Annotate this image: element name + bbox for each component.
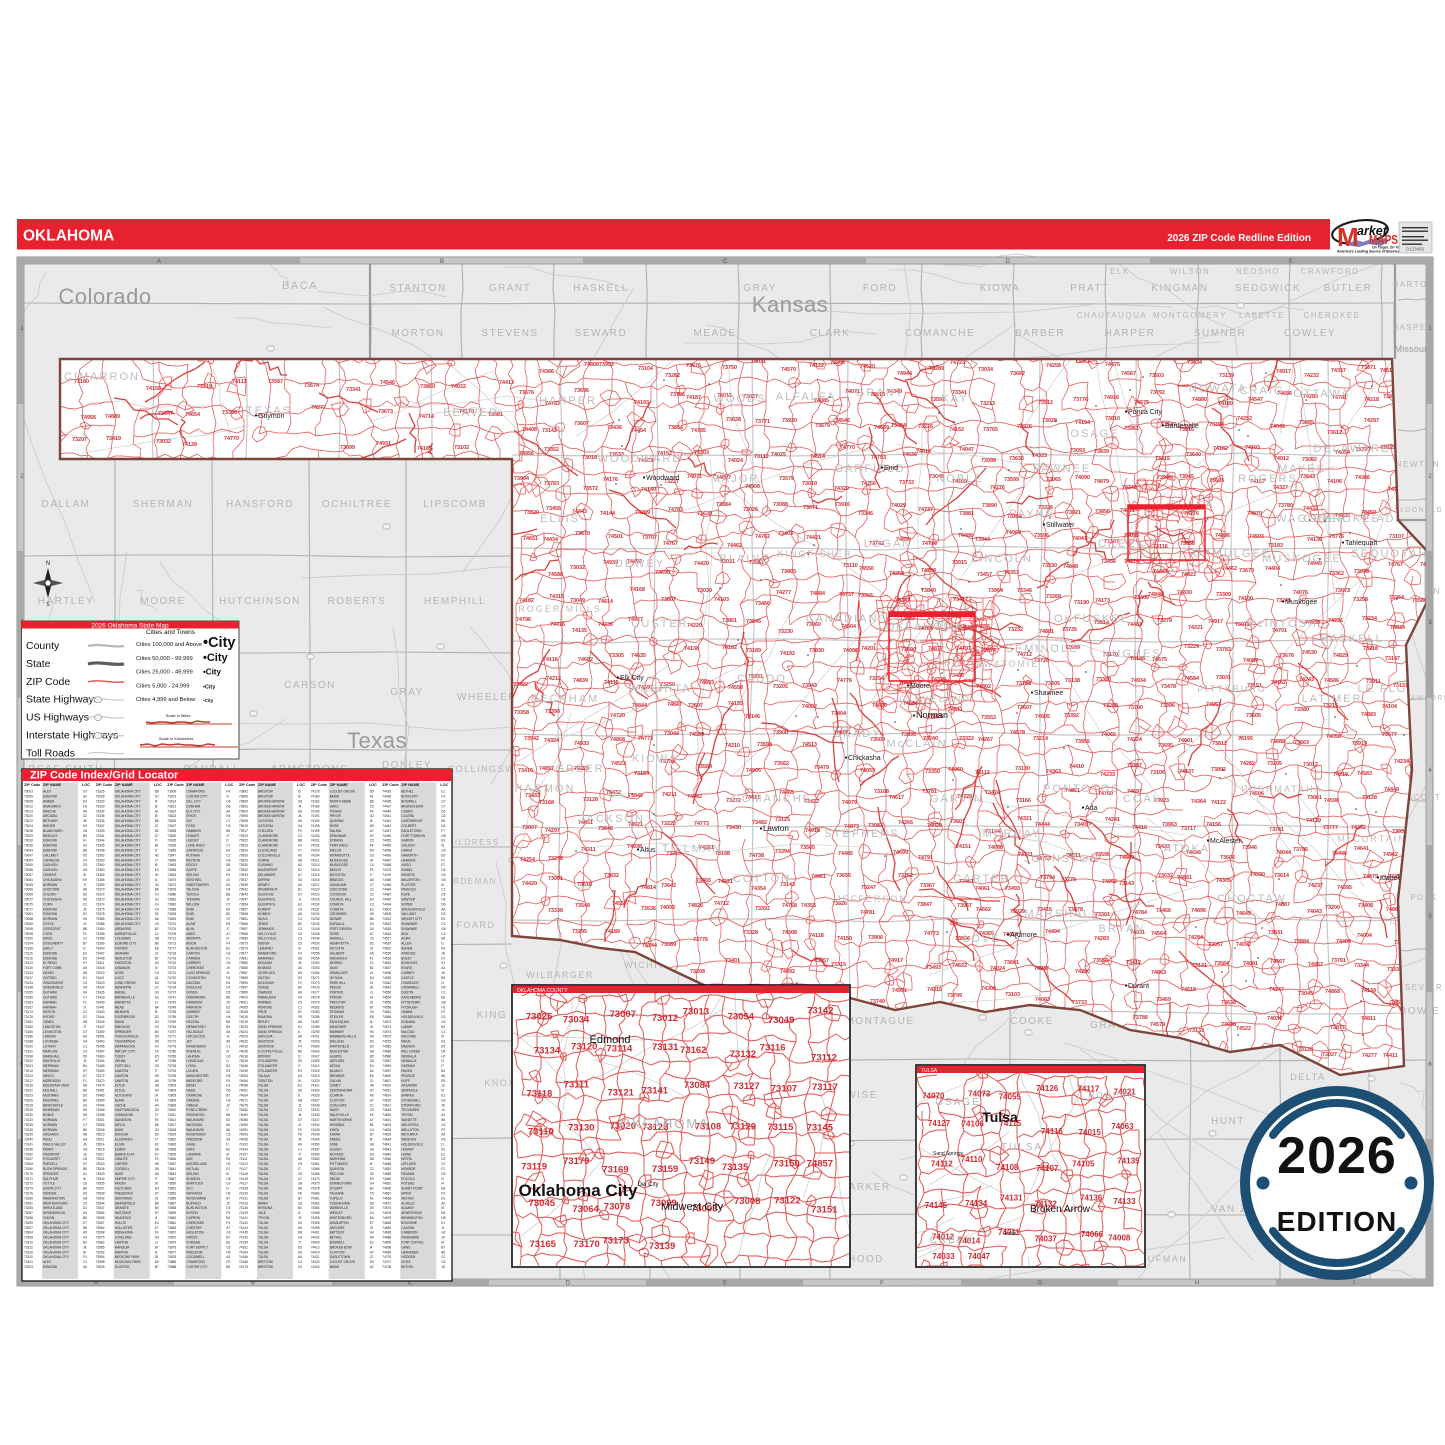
svg-text:73278: 73278 <box>1061 877 1076 883</box>
svg-text:73061: 73061 <box>1307 795 1322 801</box>
svg-text:•City: •City <box>203 635 235 651</box>
svg-text:74410: 74410 <box>1132 825 1147 831</box>
svg-text:73252: 73252 <box>898 873 913 879</box>
svg-text:73530: 73530 <box>1042 563 1057 569</box>
svg-text:HUNT: HUNT <box>1211 1116 1245 1127</box>
svg-text:73877: 73877 <box>1330 1025 1345 1031</box>
svg-text:74162: 74162 <box>1271 680 1286 686</box>
svg-text:LATIMER: LATIMER <box>1302 693 1363 705</box>
svg-text:74598: 74598 <box>1324 798 1339 804</box>
svg-text:74055: 74055 <box>860 768 875 774</box>
svg-text:73670: 73670 <box>575 531 590 537</box>
svg-text:74140: 74140 <box>641 487 656 493</box>
svg-text:73750: 73750 <box>722 365 737 371</box>
svg-text:74962: 74962 <box>1383 852 1398 858</box>
svg-text:74002: 74002 <box>802 704 817 710</box>
svg-text:74421: 74421 <box>806 535 821 541</box>
svg-text:73341: 73341 <box>346 387 361 393</box>
svg-text:WILBARGER: WILBARGER <box>526 970 594 980</box>
svg-text:73309: 73309 <box>1216 592 1231 598</box>
svg-text:CRAWFORD: CRAWFORD <box>1301 267 1360 276</box>
svg-text:74501: 74501 <box>608 534 623 540</box>
svg-text:LOC: LOC <box>154 783 162 787</box>
svg-text:74654: 74654 <box>185 412 200 418</box>
svg-text:73642: 73642 <box>661 883 676 889</box>
svg-text:SUMNER: SUMNER <box>1194 328 1246 339</box>
svg-text:73638: 73638 <box>726 417 741 423</box>
svg-text:73065: 73065 <box>1046 477 1061 483</box>
svg-text:74018: 74018 <box>805 828 820 834</box>
svg-text:74834: 74834 <box>1390 625 1405 631</box>
svg-text:73588: 73588 <box>1412 598 1427 604</box>
svg-text:STEPHENS: STEPHENS <box>824 828 899 840</box>
svg-text:73358: 73358 <box>514 710 529 716</box>
svg-text:73045: 73045 <box>1298 991 1313 997</box>
svg-text:74136: 74136 <box>1307 537 1322 543</box>
svg-text:73663: 73663 <box>1294 740 1309 746</box>
svg-text:74004: 74004 <box>1357 933 1372 939</box>
svg-text:74041: 74041 <box>1072 536 1087 542</box>
svg-text:73305: 73305 <box>609 653 624 659</box>
svg-text:73218: 73218 <box>197 384 212 390</box>
svg-text:74276: 74276 <box>1184 511 1199 517</box>
svg-text:74236: 74236 <box>1328 618 1343 624</box>
svg-text:74355: 74355 <box>801 903 816 909</box>
svg-text:74884: 74884 <box>810 591 825 597</box>
svg-text:73553: 73553 <box>981 715 996 721</box>
svg-text:73143: 73143 <box>1119 881 1134 887</box>
svg-text:73230: 73230 <box>778 629 793 635</box>
svg-text:73034: 73034 <box>563 1015 590 1026</box>
svg-text:74662: 74662 <box>976 907 991 913</box>
svg-text:733257332873329733307333473335: 7332573328733297333073334733357333673337… <box>96 790 105 1269</box>
svg-text:73116: 73116 <box>1153 544 1168 550</box>
svg-text:73131: 73131 <box>652 1042 679 1053</box>
svg-text:Missouri: Missouri <box>1394 344 1429 354</box>
svg-text:74221: 74221 <box>718 879 733 885</box>
svg-text:Chickasha: Chickasha <box>848 755 881 762</box>
svg-text:74682: 74682 <box>578 657 593 663</box>
svg-text:74354: 74354 <box>751 886 766 892</box>
svg-text:HANSFORD: HANSFORD <box>226 499 294 510</box>
svg-text:74100: 74100 <box>1238 596 1253 602</box>
svg-text:73955: 73955 <box>1075 739 1090 745</box>
svg-text:74127: 74127 <box>928 1119 951 1128</box>
svg-text:74233: 74233 <box>1100 772 1115 778</box>
svg-text:Altus: Altus <box>640 847 656 854</box>
svg-text:73134: 73134 <box>534 1045 561 1056</box>
svg-text:74877: 74877 <box>928 646 943 652</box>
svg-text:73118: 73118 <box>526 1088 552 1099</box>
svg-text:74595: 74595 <box>1337 885 1352 891</box>
svg-text:74025: 74025 <box>771 452 786 458</box>
svg-text:74290: 74290 <box>1075 969 1090 975</box>
svg-text:MUSKOGEE: MUSKOGEE <box>1262 553 1342 565</box>
svg-text:D123456: D123456 <box>1406 247 1425 252</box>
svg-text:74063: 74063 <box>1111 1122 1134 1131</box>
svg-text:73169: 73169 <box>602 1165 628 1176</box>
svg-text:74252: 74252 <box>1237 416 1252 422</box>
svg-text:NEWTON: NEWTON <box>1396 460 1440 469</box>
svg-text:73810: 73810 <box>1105 416 1120 422</box>
svg-text:74956: 74956 <box>519 451 534 457</box>
svg-text:73430: 73430 <box>726 825 741 831</box>
svg-text:74008: 74008 <box>1108 1233 1131 1242</box>
svg-text:GRANT: GRANT <box>856 387 905 399</box>
svg-text:ROGER MILLS: ROGER MILLS <box>518 604 602 614</box>
svg-text:74277: 74277 <box>776 590 791 596</box>
svg-text:73013: 73013 <box>683 1006 709 1017</box>
svg-text:74122: 74122 <box>809 363 824 369</box>
svg-text:74956: 74956 <box>81 415 96 421</box>
svg-text:74641: 74641 <box>1354 846 1369 852</box>
svg-text:74133: 74133 <box>1113 1197 1136 1206</box>
svg-text:74049: 74049 <box>1270 424 1285 430</box>
svg-text:OKFUSKEE: OKFUSKEE <box>1054 613 1130 625</box>
svg-text:74434: 74434 <box>543 537 558 543</box>
svg-text:74857: 74857 <box>807 1159 833 1170</box>
svg-text:73621: 73621 <box>1066 510 1081 516</box>
svg-text:74115: 74115 <box>604 680 619 686</box>
svg-text:73556: 73556 <box>1093 958 1108 964</box>
svg-text:JACKSON: JACKSON <box>579 813 645 825</box>
svg-text:73916: 73916 <box>835 502 850 508</box>
svg-text:73854: 73854 <box>668 425 683 431</box>
svg-text:74224: 74224 <box>1127 737 1142 743</box>
svg-text:74150: 74150 <box>837 936 852 942</box>
svg-text:73412: 73412 <box>1126 960 1141 966</box>
svg-text:ZIP NAME: ZIP NAME <box>258 783 277 787</box>
svg-text:HARMON: HARMON <box>515 783 576 795</box>
svg-text:ZIP Code: ZIP Code <box>24 783 40 787</box>
svg-text:73466: 73466 <box>755 601 770 607</box>
svg-text:73032: 73032 <box>1158 873 1173 879</box>
svg-text:74479: 74479 <box>1363 874 1378 880</box>
svg-text:74061: 74061 <box>975 886 990 892</box>
svg-text:74103: 74103 <box>714 597 729 603</box>
svg-text:LABETTE: LABETTE <box>1239 311 1285 320</box>
svg-text:HEMPHILL: HEMPHILL <box>424 596 486 607</box>
svg-text:73001: 73001 <box>548 876 563 882</box>
svg-text:74961: 74961 <box>811 874 826 880</box>
svg-text:74868: 74868 <box>1325 989 1340 995</box>
svg-text:74931: 74931 <box>376 441 391 447</box>
svg-text:74060: 74060 <box>948 767 963 773</box>
svg-text:74324: 74324 <box>544 738 559 744</box>
svg-text:74767: 74767 <box>663 541 678 547</box>
svg-text:73142: 73142 <box>542 428 557 434</box>
svg-text:OKLAHOMA: OKLAHOMA <box>23 228 114 245</box>
svg-text:74116: 74116 <box>1041 1127 1063 1136</box>
svg-text:GARVIN: GARVIN <box>930 793 984 805</box>
svg-text:73130: 73130 <box>568 1122 594 1133</box>
svg-text:BEAVER: BEAVER <box>443 407 499 419</box>
svg-text:73945: 73945 <box>1179 474 1194 480</box>
svg-text:LOC: LOC <box>297 783 305 787</box>
svg-text:73807: 73807 <box>661 597 676 603</box>
svg-text:73790: 73790 <box>1128 705 1143 711</box>
svg-text:73607: 73607 <box>1017 705 1032 711</box>
svg-text:73922: 73922 <box>513 682 528 688</box>
svg-text:74247: 74247 <box>1269 987 1284 993</box>
svg-text:73542: 73542 <box>524 736 539 742</box>
svg-text:Kansas: Kansas <box>752 292 828 317</box>
svg-text:73598: 73598 <box>757 742 772 748</box>
svg-text:73073: 73073 <box>1335 588 1350 594</box>
svg-text:Cities 5,000 - 24,999: Cities 5,000 - 24,999 <box>136 683 190 689</box>
svg-text:74201: 74201 <box>861 646 876 652</box>
svg-text:73110: 73110 <box>843 563 858 569</box>
svg-text:73478: 73478 <box>1161 684 1176 690</box>
svg-text:73132: 73132 <box>730 1049 756 1060</box>
svg-text:74781: 74781 <box>860 910 875 916</box>
svg-text:BARBER: BARBER <box>1015 328 1065 339</box>
svg-text:73133: 73133 <box>1189 1028 1204 1034</box>
svg-text:74189: 74189 <box>605 929 620 935</box>
svg-text:73019: 73019 <box>802 481 817 487</box>
svg-text:73786: 73786 <box>1133 1015 1148 1021</box>
svg-text:73089: 73089 <box>661 942 676 948</box>
svg-text:73493: 73493 <box>926 965 941 971</box>
svg-text:74081: 74081 <box>1243 961 1258 967</box>
svg-text:73695: 73695 <box>1158 743 1173 749</box>
svg-text:74308: 74308 <box>782 930 797 936</box>
svg-text:CARSON: CARSON <box>284 680 336 691</box>
svg-text:NOBLE: NOBLE <box>936 473 983 485</box>
svg-text:2026 ZIP Code Redline Edition: 2026 ZIP Code Redline Edition <box>1167 233 1311 244</box>
svg-text:73130: 73130 <box>1015 766 1030 772</box>
svg-text:74284: 74284 <box>1188 935 1203 941</box>
svg-text:Ardmore: Ardmore <box>1010 932 1037 939</box>
svg-text:74616: 74616 <box>916 449 931 455</box>
svg-text:73295: 73295 <box>572 929 587 935</box>
svg-text:73258: 73258 <box>1353 597 1368 603</box>
svg-text:73856: 73856 <box>1095 509 1110 515</box>
svg-text:74699: 74699 <box>893 850 908 856</box>
svg-text:74258: 74258 <box>889 571 904 577</box>
svg-text:73696: 73696 <box>574 388 589 394</box>
svg-text:74933: 74933 <box>574 741 589 747</box>
svg-text:74347: 74347 <box>895 598 910 604</box>
svg-text:74408: 74408 <box>522 427 537 433</box>
svg-text:Toll Roads: Toll Roads <box>26 747 75 759</box>
svg-text:73350: 73350 <box>925 769 940 775</box>
svg-text:74297: 74297 <box>1364 418 1379 424</box>
svg-text:73599: 73599 <box>1004 477 1019 483</box>
svg-text:73655: 73655 <box>836 873 851 879</box>
svg-text:73756: 73756 <box>670 392 685 398</box>
svg-text:74241: 74241 <box>1105 817 1120 823</box>
svg-text:73107: 73107 <box>1389 534 1404 540</box>
svg-text:73408: 73408 <box>1358 903 1373 909</box>
svg-text:ZIP NAME: ZIP NAME <box>115 783 134 787</box>
svg-text:73213: 73213 <box>980 401 995 407</box>
svg-text:74962: 74962 <box>687 794 702 800</box>
svg-text:STEVENS: STEVENS <box>481 328 538 339</box>
svg-text:74811: 74811 <box>1361 1016 1376 1022</box>
svg-text:73039: 73039 <box>697 588 712 594</box>
svg-text:74258: 74258 <box>1046 363 1061 369</box>
svg-text:74957: 74957 <box>1308 962 1323 968</box>
svg-text:74953: 74953 <box>1206 702 1221 708</box>
svg-text:74176: 74176 <box>603 477 618 483</box>
svg-text:2026: 2026 <box>1277 1127 1397 1185</box>
svg-text:74645: 74645 <box>1236 911 1251 917</box>
svg-text:ATOKA: ATOKA <box>1164 843 1210 855</box>
svg-text:73847: 73847 <box>917 902 932 908</box>
svg-text:DELAWARE: DELAWARE <box>1314 443 1391 455</box>
svg-text:74323: 74323 <box>1032 453 1047 459</box>
svg-text:73733: 73733 <box>1072 1000 1087 1006</box>
svg-text:73282: 73282 <box>665 373 680 379</box>
svg-text:73057: 73057 <box>1208 942 1223 948</box>
svg-text:74311: 74311 <box>581 847 596 853</box>
svg-text:Cities 4,999 and Below: Cities 4,999 and Below <box>136 697 196 703</box>
svg-text:74032: 74032 <box>451 384 466 390</box>
svg-text:73128: 73128 <box>583 797 598 803</box>
svg-text:73141: 73141 <box>642 1085 669 1096</box>
svg-text:ELLIS: ELLIS <box>540 513 580 525</box>
svg-text:74668: 74668 <box>988 845 1003 851</box>
svg-text:73776: 73776 <box>1073 397 1088 403</box>
svg-text:HARPER: HARPER <box>539 395 597 407</box>
svg-text:F4I2G9D8A4H4C7H3B5J7I1C7E4C2G4: F4I2G9D8A4H4C7H3B5J7I1C7E4C2G4E8C6E3J3E6… <box>226 790 230 1269</box>
svg-text:73673: 73673 <box>1239 568 1254 574</box>
svg-text:McDONALD: McDONALD <box>1393 507 1444 514</box>
svg-text:74136: 74136 <box>1080 1194 1103 1203</box>
svg-text:74494: 74494 <box>1045 929 1060 935</box>
svg-text:KAY: KAY <box>941 393 968 405</box>
svg-text:74714: 74714 <box>419 414 434 420</box>
svg-text:74461: 74461 <box>1153 569 1168 575</box>
svg-text:BECKHAM: BECKHAM <box>531 693 599 705</box>
svg-text:CADDO: CADDO <box>737 673 787 685</box>
svg-text:MAYES: MAYES <box>1278 463 1326 475</box>
svg-text:73946: 73946 <box>1242 845 1257 851</box>
svg-text:PAYNE: PAYNE <box>1009 508 1055 520</box>
svg-text:CREEK: CREEK <box>1098 538 1146 550</box>
svg-text:74079: 74079 <box>842 800 857 806</box>
svg-text:74410: 74410 <box>1069 764 1084 770</box>
svg-text:73108: 73108 <box>874 789 889 795</box>
svg-text:74152: 74152 <box>949 427 964 433</box>
svg-text:74112: 74112 <box>931 1160 953 1169</box>
svg-text:73162: 73162 <box>680 1045 706 1056</box>
svg-text:ZIP NAME: ZIP NAME <box>43 783 62 787</box>
svg-text:74134: 74134 <box>965 1199 988 1208</box>
svg-text:ZIP Code: ZIP Code <box>311 783 327 787</box>
svg-text:73733: 73733 <box>899 480 914 486</box>
svg-text:BUTLER: BUTLER <box>1324 283 1372 294</box>
svg-text:POTTAWATOMIE: POTTAWATOMIE <box>945 659 1040 669</box>
svg-text:74564: 74564 <box>1151 931 1166 937</box>
svg-text:74856: 74856 <box>975 624 990 630</box>
svg-text:738927389673899739037390473905: 7389273896738997390373904739057390873915… <box>239 790 248 1269</box>
svg-text:73783: 73783 <box>544 481 559 487</box>
svg-text:74126: 74126 <box>1036 1084 1059 1093</box>
svg-text:73777: 73777 <box>1323 825 1338 831</box>
svg-text:BRYAN: BRYAN <box>1099 923 1146 935</box>
svg-text:74558: 74558 <box>728 685 743 691</box>
svg-text:Tahlequah: Tahlequah <box>1345 540 1377 547</box>
svg-text:73416: 73416 <box>518 768 533 774</box>
svg-text:730037300573008730127301373020: 7300373005730087301273013730207302273024… <box>24 790 33 1269</box>
svg-text:TULSA: TULSA <box>921 1068 938 1074</box>
svg-text:73673: 73673 <box>378 409 393 415</box>
svg-text:CHOCTAW: CHOCTAW <box>1217 893 1287 905</box>
svg-text:73812: 73812 <box>1212 741 1227 747</box>
svg-text:73638: 73638 <box>1221 1000 1236 1006</box>
svg-text:74522: 74522 <box>1236 1026 1251 1032</box>
svg-text:74776: 74776 <box>837 678 852 684</box>
svg-text:74879: 74879 <box>1094 479 1109 485</box>
svg-text:74297: 74297 <box>545 828 560 834</box>
svg-text:NEOSHO: NEOSHO <box>1236 267 1280 276</box>
svg-text:ZIP Code: ZIP Code <box>239 783 255 787</box>
svg-text:73107: 73107 <box>771 1083 797 1094</box>
svg-text:73303: 73303 <box>694 450 709 456</box>
svg-text:Cities 25,000 - 49,999: Cities 25,000 - 49,999 <box>136 670 193 676</box>
svg-text:73064: 73064 <box>572 1204 599 1215</box>
svg-text:73099: 73099 <box>340 445 355 451</box>
svg-text:74139: 74139 <box>1361 988 1376 994</box>
svg-text:73792: 73792 <box>1150 390 1165 396</box>
svg-text:73404: 73404 <box>831 711 846 717</box>
svg-text:JOHNSTON: JOHNSTON <box>1024 853 1100 865</box>
svg-text:GRAY: GRAY <box>390 687 424 698</box>
svg-text:74092: 74092 <box>1236 942 1251 948</box>
svg-text:WOODWARD: WOODWARD <box>598 453 683 465</box>
svg-text:73289: 73289 <box>929 366 944 372</box>
svg-text:74277: 74277 <box>311 405 326 411</box>
svg-text:74784: 74784 <box>1132 910 1147 916</box>
svg-text:74024: 74024 <box>728 458 743 464</box>
svg-text:73840: 73840 <box>628 793 643 799</box>
svg-text:74808: 74808 <box>584 362 599 368</box>
svg-text:74309: 74309 <box>981 986 996 992</box>
svg-text:73268: 73268 <box>1046 594 1061 600</box>
svg-text:CLEVELAND: CLEVELAND <box>899 694 971 704</box>
svg-text:ELK: ELK <box>1110 267 1130 276</box>
svg-text:73149: 73149 <box>689 1156 715 1167</box>
svg-text:Jenks: Jenks <box>1003 1231 1017 1237</box>
svg-text:74108: 74108 <box>996 1163 1019 1172</box>
svg-text:73356: 73356 <box>858 593 873 599</box>
svg-text:74826: 74826 <box>688 903 703 909</box>
svg-text:73346: 73346 <box>1017 588 1032 594</box>
svg-text:74951: 74951 <box>892 988 907 994</box>
svg-text:G: G <box>1038 1281 1043 1287</box>
svg-text:74505: 74505 <box>1035 714 1050 720</box>
svg-text:73306: 73306 <box>222 410 237 416</box>
svg-text:73394: 73394 <box>1209 422 1224 428</box>
svg-text:73034: 73034 <box>978 367 993 373</box>
svg-text:Colorado: Colorado <box>58 284 151 309</box>
svg-text:73943: 73943 <box>802 683 817 689</box>
svg-text:73116: 73116 <box>760 1042 786 1053</box>
svg-text:73189: 73189 <box>746 648 761 654</box>
svg-text:73127: 73127 <box>733 1081 759 1092</box>
svg-text:74492: 74492 <box>780 969 795 975</box>
svg-text:DEWEY: DEWEY <box>615 558 665 570</box>
svg-text:PAWNEE: PAWNEE <box>1033 463 1091 475</box>
svg-text:73027: 73027 <box>1322 1052 1337 1058</box>
svg-text:74773: 74773 <box>694 821 709 827</box>
svg-text:COTTON: COTTON <box>733 873 791 885</box>
svg-text:A: A <box>157 259 161 265</box>
svg-text:EDITION: EDITION <box>1277 1206 1398 1237</box>
svg-text:74236: 74236 <box>598 622 613 628</box>
